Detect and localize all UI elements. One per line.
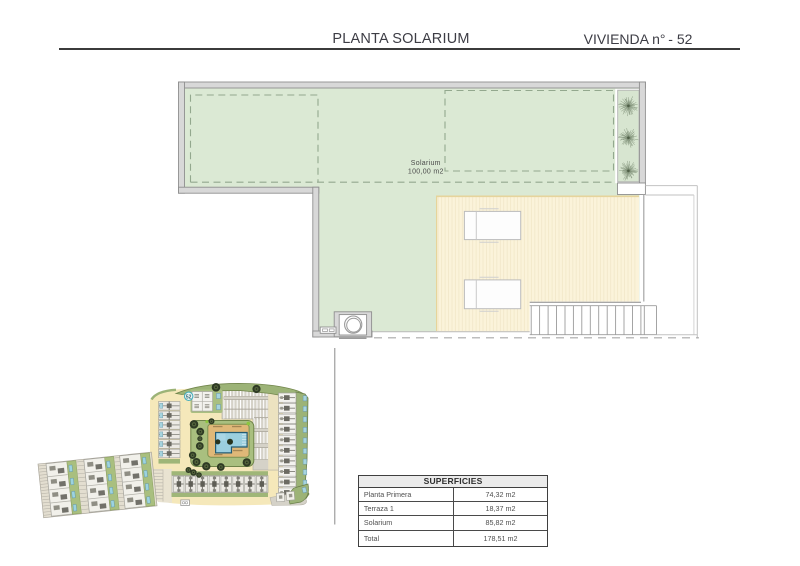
svg-text:Solarium: Solarium — [411, 160, 441, 167]
svg-text:100,00 m2: 100,00 m2 — [408, 169, 444, 176]
svg-text:52: 52 — [186, 394, 192, 400]
